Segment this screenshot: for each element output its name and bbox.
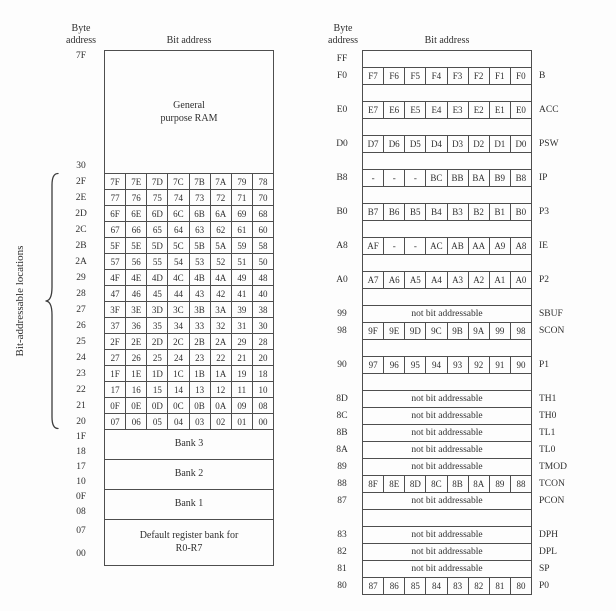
byte-address-label: 2C — [58, 221, 104, 238]
bit-cell: 16 — [126, 382, 147, 397]
bit-cell: 68 — [253, 206, 273, 221]
sfr-row: 87not bit addressablePCON — [322, 492, 614, 510]
ram-bit-row: 2F7F7E7D7C7B7A7978 — [58, 173, 302, 190]
bit-cell: 0A — [211, 398, 232, 413]
bit-address-header: Bit address — [104, 35, 274, 47]
bit-cell: 11 — [232, 382, 253, 397]
sfr-name-label — [532, 220, 612, 238]
bit-cell: F3 — [448, 68, 469, 84]
bit-cell: AF — [363, 238, 384, 254]
sfr-row — [322, 118, 614, 136]
bank-row: 1F18Bank 3 — [58, 429, 302, 460]
bit-cell: - — [384, 170, 405, 186]
bank-box: Bank 2 — [104, 459, 274, 490]
bit-cell-row: B7B6B5B4B3B2B1B0 — [362, 203, 532, 221]
byte-address-label — [322, 288, 362, 306]
byte-address-label — [322, 118, 362, 136]
sfr-row: D0D7D6D5D4D3D2D1D0PSW — [322, 135, 614, 153]
bit-cell: 75 — [147, 190, 168, 205]
bit-cell: 1F — [105, 366, 126, 381]
sfr-row: 8Dnot bit addressableTH1 — [322, 390, 614, 408]
bit-cell: 73 — [190, 190, 211, 205]
byte-address-label: 90 — [322, 356, 362, 374]
bit-cell: 42 — [211, 286, 232, 301]
byte-address-label: D0 — [322, 135, 362, 153]
bit-cell: 83 — [448, 578, 469, 594]
byte-address-label: 2A — [58, 253, 104, 270]
sfr-row — [322, 84, 614, 102]
bit-cell: 3A — [211, 302, 232, 317]
sfr-name-label: DPL — [532, 543, 612, 561]
bit-cell: 5F — [105, 238, 126, 253]
byte-address-label: 08 — [76, 507, 86, 517]
bit-cell: 67 — [105, 222, 126, 237]
bit-cell: 3E — [126, 302, 147, 317]
sfr-row: 82not bit addressableDPL — [322, 543, 614, 561]
sfr-name-label: PSW — [532, 135, 612, 153]
bit-cell: 1A — [211, 366, 232, 381]
bit-cell: 43 — [190, 286, 211, 301]
bit-cell: 28 — [253, 334, 273, 349]
bit-cell: 91 — [490, 357, 511, 373]
bit-cell: 32 — [211, 318, 232, 333]
byte-address-label — [322, 84, 362, 102]
bit-cell-row: 4746454443424140 — [104, 285, 274, 302]
bit-cell: 69 — [232, 206, 253, 221]
byte-address-label — [322, 373, 362, 391]
bit-cell: 74 — [168, 190, 189, 205]
sfr-name-label: P2 — [532, 271, 612, 289]
sfr-row: 99not bit addressableSBUF — [322, 305, 614, 323]
bit-cell: F1 — [490, 68, 511, 84]
byte-address-header: Byte address — [58, 23, 104, 46]
bit-cell: 79 — [232, 174, 253, 189]
bit-cell: 7C — [168, 174, 189, 189]
bit-cell: E6 — [384, 102, 405, 118]
bit-cell-row: E7E6E5E4E3E2E1E0 — [362, 101, 532, 119]
bank-addresses: 1F18 — [58, 429, 104, 460]
sfr-row: 8Bnot bit addressableTL1 — [322, 424, 614, 442]
bit-cell: 10 — [253, 382, 273, 397]
bit-cell: 2C — [168, 334, 189, 349]
bit-cell: 04 — [168, 414, 189, 429]
bit-cell: B6 — [384, 204, 405, 220]
bit-cell: 1B — [190, 366, 211, 381]
byte-address-label: 83 — [322, 526, 362, 544]
bit-cell-row: 2F2E2D2C2B2A2928 — [104, 333, 274, 350]
ram-bit-row: 294F4E4D4C4B4A4948 — [58, 269, 302, 286]
bit-cell: 0D — [147, 398, 168, 413]
bit-cell: 22 — [211, 350, 232, 365]
sfr-name-label: TL0 — [532, 441, 612, 459]
bit-cell: 25 — [147, 350, 168, 365]
byte-address-label: 2B — [58, 237, 104, 254]
bank-box: Default register bank for R0-R7 — [104, 519, 274, 566]
spacer-box — [362, 220, 532, 238]
byte-address-label: 80 — [322, 577, 362, 595]
bit-cell: 95 — [405, 357, 426, 373]
bit-cell: 02 — [211, 414, 232, 429]
bit-cell-row: 7F7E7D7C7B7A7978 — [104, 173, 274, 190]
bit-cell: 92 — [469, 357, 490, 373]
bit-cell: 97 — [363, 357, 384, 373]
empty-sfr-box — [362, 50, 532, 68]
bit-cell: E5 — [405, 102, 426, 118]
sfr-name-label: TH0 — [532, 407, 612, 425]
bit-cell: 4E — [126, 270, 147, 285]
byte-address-label: 26 — [58, 317, 104, 334]
byte-address-label: 0F — [76, 492, 86, 502]
bit-cell: 96 — [384, 357, 405, 373]
not-bit-addressable-box: not bit addressable — [362, 441, 532, 459]
bit-cell: 38 — [253, 302, 273, 317]
byte-address-label: 2E — [58, 189, 104, 206]
bit-cell: 00 — [253, 414, 273, 429]
bit-cell: 9A — [469, 323, 490, 339]
bit-cell: 15 — [147, 382, 168, 397]
byte-address-label: FF — [322, 50, 362, 68]
sfr-name-label — [532, 152, 612, 170]
bit-cell: 52 — [211, 254, 232, 269]
byte-address-label: 10 — [76, 477, 86, 487]
bit-cell: 21 — [232, 350, 253, 365]
bit-cell: 34 — [168, 318, 189, 333]
bit-cell: 71 — [232, 190, 253, 205]
spacer-box — [362, 186, 532, 204]
sfr-name-label: TMOD — [532, 458, 612, 476]
bit-cell-row: F7F6F5F4F3F2F1F0 — [362, 67, 532, 85]
bit-cell: 51 — [232, 254, 253, 269]
sfr-row: B8---BCBBBAB9B8IP — [322, 169, 614, 187]
sfr-row — [322, 373, 614, 391]
bit-cell: 7D — [147, 174, 168, 189]
byte-address-label: E0 — [322, 101, 362, 119]
bit-cell-row: D7D6D5D4D3D2D1D0 — [362, 135, 532, 153]
bank-row: 0F08Bank 1 — [58, 489, 302, 520]
bank-addresses: 0F08 — [58, 489, 104, 520]
sfr-row: 89not bit addressableTMOD — [322, 458, 614, 476]
bank-addresses: 1710 — [58, 459, 104, 490]
ram-bit-row: 2E7776757473727170 — [58, 189, 302, 206]
bit-cell: A2 — [469, 272, 490, 288]
bank-label: Default register bank for R0-R7 — [139, 530, 239, 555]
sfr-name-label: TL1 — [532, 424, 612, 442]
bit-cell: 18 — [253, 366, 273, 381]
bit-cell: 0F — [105, 398, 126, 413]
byte-address-label: 87 — [322, 492, 362, 510]
ram-bit-row: 231F1E1D1C1B1A1918 — [58, 365, 302, 382]
byte-address-label — [322, 509, 362, 527]
bit-cell: 60 — [253, 222, 273, 237]
bit-cell: A1 — [490, 272, 511, 288]
bit-address-header: Bit address — [362, 35, 532, 47]
sfr-row: A0A7A6A5A4A3A2A1A0P2 — [322, 271, 614, 289]
sfr-name-label: B — [532, 67, 612, 85]
sfr-name-label — [532, 186, 612, 204]
bit-cell: 7F — [105, 174, 126, 189]
bit-cell: 37 — [105, 318, 126, 333]
bit-cell: 4C — [168, 270, 189, 285]
byte-address-label: 27 — [58, 301, 104, 318]
bit-cell: 56 — [126, 254, 147, 269]
bit-cell: 0C — [168, 398, 189, 413]
ram-bit-row: 273F3E3D3C3B3A3938 — [58, 301, 302, 318]
bit-cell: 63 — [190, 222, 211, 237]
bit-cell-row: 8786858483828180 — [362, 577, 532, 595]
byte-address-label: 23 — [58, 365, 104, 382]
bit-cell-row: 0706050403020100 — [104, 413, 274, 430]
bit-cell: 09 — [232, 398, 253, 413]
byte-address-label: 8D — [322, 390, 362, 408]
bit-cell: 53 — [190, 254, 211, 269]
ram-bit-row: 221716151413121110 — [58, 381, 302, 398]
byte-address-label — [322, 339, 362, 357]
bit-cell: 23 — [190, 350, 211, 365]
sfr-name-label: P1 — [532, 356, 612, 374]
bit-cell: AA — [469, 238, 490, 254]
sfr-name-label: TCON — [532, 475, 612, 493]
bit-cell: 72 — [211, 190, 232, 205]
bit-cell: D2 — [469, 136, 490, 152]
bit-cell: A6 — [384, 272, 405, 288]
bit-cell: 57 — [105, 254, 126, 269]
bit-cell-row: 9F9E9D9C9B9A9998 — [362, 322, 532, 340]
bit-cell: 77 — [105, 190, 126, 205]
bit-cell: B1 — [490, 204, 511, 220]
bit-cell: F6 — [384, 68, 405, 84]
bit-cell: 50 — [253, 254, 273, 269]
bit-cell: 4B — [190, 270, 211, 285]
bit-cell: A8 — [511, 238, 531, 254]
bit-cell: AB — [448, 238, 469, 254]
bit-cell-row: 2726252423222120 — [104, 349, 274, 366]
ram-bit-row: 2A5756555453525150 — [58, 253, 302, 270]
bit-cell: 20 — [253, 350, 273, 365]
spacer-box — [362, 254, 532, 272]
bit-cell: 9C — [426, 323, 447, 339]
bit-cell: 35 — [147, 318, 168, 333]
bank-label: Bank 2 — [139, 468, 239, 481]
not-bit-addressable-box: not bit addressable — [362, 526, 532, 544]
bit-cell: 86 — [384, 578, 405, 594]
bit-cell: 01 — [232, 414, 253, 429]
bit-cell: 59 — [232, 238, 253, 253]
bit-cell: 36 — [126, 318, 147, 333]
bit-cell: 90 — [511, 357, 531, 373]
bit-cell: 70 — [253, 190, 273, 205]
byte-address-label — [322, 220, 362, 238]
byte-address-label: 21 — [58, 397, 104, 414]
byte-address-label: B0 — [322, 203, 362, 221]
bit-cell: B0 — [511, 204, 531, 220]
bit-cell: 8B — [448, 476, 469, 492]
bit-cell: 78 — [253, 174, 273, 189]
bit-cell: BB — [448, 170, 469, 186]
bank-row: 0700Default register bank for R0-R7 — [58, 519, 302, 566]
bit-cell: 49 — [232, 270, 253, 285]
bit-cell: F0 — [511, 68, 531, 84]
bit-cell: 4D — [147, 270, 168, 285]
bit-cell: 87 — [363, 578, 384, 594]
bit-cell: 7E — [126, 174, 147, 189]
byte-address-label: 00 — [76, 549, 86, 559]
byte-address-label: 99 — [322, 305, 362, 323]
bit-cell: 30 — [253, 318, 273, 333]
bit-cell: F4 — [426, 68, 447, 84]
bit-cell: 27 — [105, 350, 126, 365]
sfr-name-label: P0 — [532, 577, 612, 595]
byte-address-label: B8 — [322, 169, 362, 187]
bit-cell: - — [405, 170, 426, 186]
bank-label: Bank 1 — [139, 498, 239, 511]
bit-cell: 88 — [511, 476, 531, 492]
sfr-row: 989F9E9D9C9B9A9998SCON — [322, 322, 614, 340]
byte-address-label: A8 — [322, 237, 362, 255]
bit-cell: D5 — [405, 136, 426, 152]
bank-row: 1710Bank 2 — [58, 459, 302, 490]
byte-address-label: 88 — [322, 475, 362, 493]
byte-address-label: 98 — [322, 322, 362, 340]
sfr-row: A8AF--ACABAAA9A8IE — [322, 237, 614, 255]
bit-cell: 6B — [190, 206, 211, 221]
bit-cell: 46 — [126, 286, 147, 301]
byte-address-label: 24 — [58, 349, 104, 366]
bit-cell: 24 — [168, 350, 189, 365]
bit-cell: 4A — [211, 270, 232, 285]
sfr-name-label: SBUF — [532, 305, 612, 323]
byte-address-label: 25 — [58, 333, 104, 350]
sfr-name-label — [532, 118, 612, 136]
spacer-box — [362, 152, 532, 170]
bit-cell: - — [363, 170, 384, 186]
bit-cell-row: 0F0E0D0C0B0A0908 — [104, 397, 274, 414]
bit-cell: B2 — [469, 204, 490, 220]
bit-cell: 31 — [232, 318, 253, 333]
bit-cell: 6A — [211, 206, 232, 221]
bit-cell: E0 — [511, 102, 531, 118]
bit-cell: F7 — [363, 68, 384, 84]
byte-address-label — [322, 186, 362, 204]
bit-cell: 55 — [147, 254, 168, 269]
not-bit-addressable-box: not bit addressable — [362, 305, 532, 323]
bit-cell: 6F — [105, 206, 126, 221]
bit-cell: - — [384, 238, 405, 254]
byte-address-label: 22 — [58, 381, 104, 398]
right-headers: Byte address Bit address — [322, 14, 614, 46]
bit-cell: 9E — [384, 323, 405, 339]
bit-cell: F5 — [405, 68, 426, 84]
bit-cell: B3 — [448, 204, 469, 220]
bit-cell-row: 6F6E6D6C6B6A6968 — [104, 205, 274, 222]
spacer-box — [362, 509, 532, 527]
sfr-row: 888F8E8D8C8B8A8988TCON — [322, 475, 614, 493]
sfr-name-label — [532, 254, 612, 272]
bit-cell: 2A — [211, 334, 232, 349]
bank-box: Bank 3 — [104, 429, 274, 460]
bit-cell: 33 — [190, 318, 211, 333]
sfr-name-label — [532, 288, 612, 306]
ram-bit-row: 2B5F5E5D5C5B5A5958 — [58, 237, 302, 254]
bit-cell: D4 — [426, 136, 447, 152]
not-bit-addressable-box: not bit addressable — [362, 543, 532, 561]
sfr-row: F0F7F6F5F4F3F2F1F0B — [322, 67, 614, 85]
byte-address-label: 8C — [322, 407, 362, 425]
bank-label: Bank 3 — [139, 438, 239, 451]
bit-cell-row: ---BCBBBAB9B8 — [362, 169, 532, 187]
sfr-row: B0B7B6B5B4B3B2B1B0P3 — [322, 203, 614, 221]
bit-cell: 1E — [126, 366, 147, 381]
bit-cell: B8 — [511, 170, 531, 186]
byte-address-label — [322, 254, 362, 272]
bit-cell: 9F — [363, 323, 384, 339]
sfr-row: E0E7E6E5E4E3E2E1E0ACC — [322, 101, 614, 119]
not-bit-addressable-box: not bit addressable — [362, 458, 532, 476]
bit-cell: 26 — [126, 350, 147, 365]
sfr-name-label — [532, 509, 612, 527]
sfr-name-label — [532, 339, 612, 357]
byte-address-label: 20 — [58, 413, 104, 430]
bit-cell: 40 — [253, 286, 273, 301]
byte-address-label: 8A — [322, 441, 362, 459]
bit-cell: E3 — [448, 102, 469, 118]
spacer-box — [362, 118, 532, 136]
bit-cell: 2B — [190, 334, 211, 349]
bit-cell: AC — [426, 238, 447, 254]
bit-cell: D3 — [448, 136, 469, 152]
not-bit-addressable-box: not bit addressable — [362, 492, 532, 510]
sfr-row — [322, 220, 614, 238]
not-bit-addressable-box: not bit addressable — [362, 390, 532, 408]
byte-address-label: 8B — [322, 424, 362, 442]
bit-cell: 9B — [448, 323, 469, 339]
bit-cell: B5 — [405, 204, 426, 220]
ram-bit-row: 252F2E2D2C2B2A2928 — [58, 333, 302, 350]
sfr-name-label: TH1 — [532, 390, 612, 408]
sfr-row: FF — [322, 50, 614, 68]
ram-bit-row: 284746454443424140 — [58, 285, 302, 302]
bit-cell: 14 — [168, 382, 189, 397]
bit-cell: 7A — [211, 174, 232, 189]
byte-address-label: 7F — [76, 51, 86, 61]
bit-cell: 1D — [147, 366, 168, 381]
bit-cell: BC — [426, 170, 447, 186]
bit-cell: 3D — [147, 302, 168, 317]
bit-cell: 3C — [168, 302, 189, 317]
bank-box: Bank 1 — [104, 489, 274, 520]
gp-ram-addresses: 7F 30 — [58, 50, 104, 174]
bit-cell: 6C — [168, 206, 189, 221]
byte-address-header-text: Byte address — [322, 23, 364, 46]
byte-address-label: 07 — [76, 526, 86, 536]
bit-cell: 8D — [405, 476, 426, 492]
bit-cell-row: AF--ACABAAA9A8 — [362, 237, 532, 255]
bit-cell: E7 — [363, 102, 384, 118]
sfr-row — [322, 152, 614, 170]
byte-address-label: 29 — [58, 269, 104, 286]
byte-address-label: A0 — [322, 271, 362, 289]
bit-cell: 2E — [126, 334, 147, 349]
bit-cell: 85 — [405, 578, 426, 594]
bit-cell: 84 — [426, 578, 447, 594]
bit-cell: 5C — [168, 238, 189, 253]
bit-cell-row: 8F8E8D8C8B8A8988 — [362, 475, 532, 493]
bit-cell: 8C — [426, 476, 447, 492]
ram-bit-row: 210F0E0D0C0B0A0908 — [58, 397, 302, 414]
bit-cell-row: 5756555453525150 — [104, 253, 274, 270]
bit-addressable-label: Bit-addressable locations — [14, 246, 26, 357]
bit-cell: 93 — [448, 357, 469, 373]
not-bit-addressable-box: not bit addressable — [362, 424, 532, 442]
